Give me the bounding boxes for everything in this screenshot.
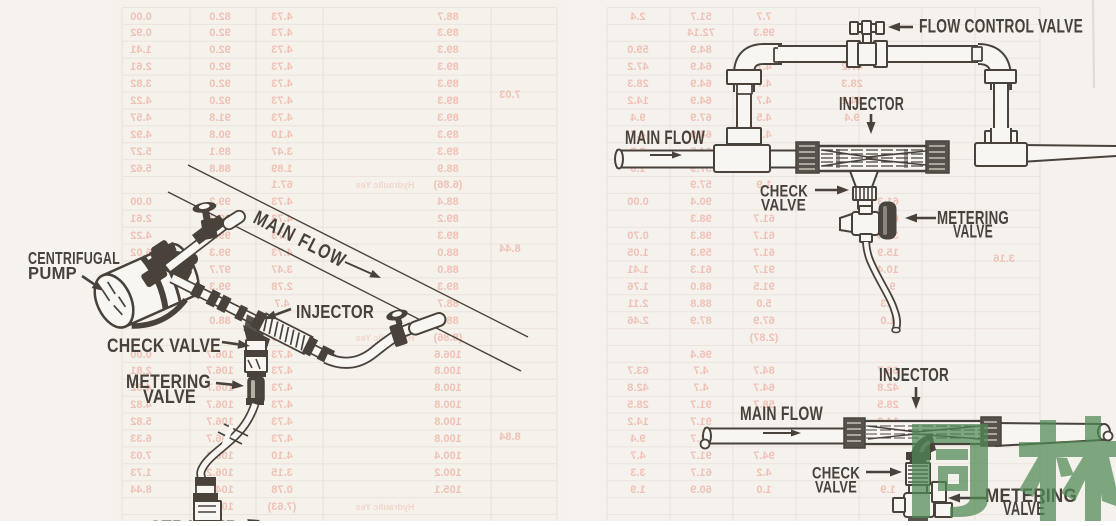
- svg-text:1.76: 1.76: [627, 281, 648, 293]
- svg-text:89.3: 89.3: [437, 230, 458, 242]
- svg-text:89.3: 89.3: [437, 281, 458, 293]
- svg-text:2.11: 2.11: [628, 298, 649, 310]
- svg-text:MAIN FLOW: MAIN FLOW: [740, 403, 823, 425]
- svg-text:92.0: 92.0: [209, 61, 230, 73]
- svg-text:2.61: 2.61: [130, 213, 151, 225]
- svg-text:60.9: 60.9: [690, 484, 711, 496]
- svg-text:(7.63): (7.63): [267, 501, 296, 513]
- svg-text:89.1: 89.1: [209, 146, 230, 158]
- svg-text:VALVE: VALVE: [815, 479, 857, 497]
- svg-text:4.73: 4.73: [271, 433, 292, 445]
- svg-text:1.05: 1.05: [627, 247, 648, 259]
- svg-text:72.14: 72.14: [686, 27, 714, 39]
- svg-text:92.0: 92.0: [209, 95, 230, 107]
- svg-text:3.16: 3.16: [993, 253, 1014, 265]
- svg-text:61.3: 61.3: [690, 264, 711, 276]
- svg-text:1.89: 1.89: [271, 163, 292, 175]
- svg-text:3.47: 3.47: [271, 264, 292, 276]
- svg-text:1.73: 1.73: [130, 467, 151, 479]
- svg-text:4.7: 4.7: [693, 365, 708, 377]
- svg-text:100.4: 100.4: [433, 450, 461, 462]
- svg-text:4.7: 4.7: [693, 382, 708, 394]
- svg-text:4.7: 4.7: [274, 298, 289, 310]
- svg-text:0.00: 0.00: [130, 196, 151, 208]
- svg-text:89.3: 89.3: [437, 129, 458, 141]
- svg-text:91.7: 91.7: [690, 399, 711, 411]
- svg-text:INJECTOR: INJECTOR: [839, 94, 904, 114]
- svg-text:MAIN FLOW: MAIN FLOW: [625, 127, 705, 149]
- svg-text:61.7: 61.7: [753, 230, 774, 242]
- svg-text:98.3: 98.3: [690, 213, 711, 225]
- svg-text:89.3: 89.3: [437, 61, 458, 73]
- svg-text:4.73: 4.73: [271, 61, 292, 73]
- svg-text:9.4: 9.4: [629, 433, 645, 445]
- svg-text:42.8: 42.8: [627, 382, 648, 394]
- svg-text:92.0: 92.0: [209, 78, 230, 90]
- svg-text:(6.86): (6.86): [433, 179, 462, 191]
- svg-text:8.84: 8.84: [498, 431, 520, 443]
- svg-text:88.0: 88.0: [437, 247, 458, 259]
- svg-text:3.47: 3.47: [271, 146, 292, 158]
- svg-text:CHECK VALVE: CHECK VALVE: [107, 336, 221, 357]
- svg-text:Hydraulic Yes: Hydraulic Yes: [356, 502, 415, 512]
- svg-text:8.44: 8.44: [129, 484, 151, 496]
- svg-text:4.73: 4.73: [271, 44, 292, 56]
- svg-text:0.00: 0.00: [130, 11, 151, 23]
- svg-text:4.10: 4.10: [271, 129, 292, 141]
- svg-text:VALVE: VALVE: [1003, 499, 1045, 520]
- svg-text:9.4: 9.4: [629, 112, 645, 124]
- svg-text:64.9: 64.9: [690, 78, 711, 90]
- svg-text:4.73: 4.73: [271, 349, 292, 361]
- svg-text:88.0: 88.0: [209, 315, 230, 327]
- svg-text:61.7: 61.7: [753, 213, 774, 225]
- svg-text:94.7: 94.7: [753, 450, 774, 462]
- svg-text:61.7: 61.7: [690, 467, 711, 479]
- svg-text:4.92: 4.92: [130, 129, 151, 141]
- svg-text:4.73: 4.73: [271, 416, 292, 428]
- svg-text:64.9: 64.9: [690, 95, 711, 107]
- svg-text:0.00: 0.00: [627, 196, 648, 208]
- svg-text:28.5: 28.5: [627, 399, 648, 411]
- svg-text:INJECTOR: INJECTOR: [879, 365, 949, 385]
- svg-text:100.8: 100.8: [434, 382, 462, 394]
- svg-text:4.73: 4.73: [271, 78, 292, 90]
- svg-text:4.73: 4.73: [271, 27, 292, 39]
- svg-text:5.62: 5.62: [130, 163, 151, 175]
- svg-text:4.73: 4.73: [271, 365, 292, 377]
- svg-text:1.0: 1.0: [756, 484, 771, 496]
- svg-text:84.7: 84.7: [753, 365, 774, 377]
- svg-text:88.9: 88.9: [437, 163, 458, 175]
- svg-text:4.7: 4.7: [756, 95, 771, 107]
- svg-text:5.27: 5.27: [130, 146, 151, 158]
- svg-text:90.8: 90.8: [209, 129, 230, 141]
- svg-text:4.5: 4.5: [756, 112, 771, 124]
- svg-text:59.3: 59.3: [690, 247, 711, 259]
- svg-text:FLOW CONTROL VALVE: FLOW CONTROL VALVE: [919, 17, 1083, 38]
- svg-text:PUMP: PUMP: [28, 263, 77, 283]
- svg-text:100.8: 100.8: [434, 416, 462, 428]
- svg-text:0.70: 0.70: [627, 230, 648, 242]
- svg-text:7.7: 7.7: [756, 11, 771, 23]
- svg-text:47.2: 47.2: [627, 61, 648, 73]
- svg-text:1.9: 1.9: [630, 484, 645, 496]
- svg-text:4.73: 4.73: [271, 11, 292, 23]
- svg-text:7.03: 7.03: [130, 450, 151, 462]
- svg-text:4.22: 4.22: [130, 230, 151, 242]
- svg-text:67.9: 67.9: [690, 112, 711, 124]
- svg-text:6.33: 6.33: [130, 433, 151, 445]
- svg-text:105.1: 105.1: [434, 484, 462, 496]
- svg-text:VALVE: VALVE: [953, 222, 993, 242]
- svg-text:2.78: 2.78: [271, 281, 292, 293]
- svg-text:96.4: 96.4: [689, 349, 711, 361]
- svg-text:106.6: 106.6: [434, 349, 462, 361]
- svg-text:59.0: 59.0: [627, 44, 648, 56]
- svg-text:89.3: 89.3: [437, 95, 458, 107]
- svg-text:100.8: 100.8: [434, 433, 462, 445]
- svg-text:3.3: 3.3: [630, 467, 645, 479]
- svg-text:91.7: 91.7: [690, 416, 711, 428]
- svg-text:4.57: 4.57: [130, 112, 151, 124]
- svg-text:63.7: 63.7: [627, 365, 648, 377]
- svg-text:89.3: 89.3: [437, 44, 458, 56]
- svg-text:2.61: 2.61: [130, 61, 151, 73]
- svg-text:VALVE: VALVE: [143, 387, 196, 408]
- svg-text:84.9: 84.9: [690, 44, 711, 56]
- svg-text:92.0: 92.0: [209, 27, 230, 39]
- svg-text:4.73: 4.73: [271, 399, 292, 411]
- svg-text:90.4: 90.4: [689, 196, 711, 208]
- svg-text:67.9: 67.9: [753, 315, 774, 327]
- svg-text:89.3: 89.3: [437, 112, 458, 124]
- svg-text:57.9: 57.9: [690, 179, 711, 191]
- svg-text:5.0: 5.0: [756, 298, 771, 310]
- svg-text:100.8: 100.8: [434, 365, 462, 377]
- svg-text:1.41: 1.41: [130, 44, 151, 56]
- svg-text:91.8: 91.8: [209, 112, 230, 124]
- svg-text:4.73: 4.73: [271, 95, 292, 107]
- svg-text:99.3: 99.3: [209, 247, 230, 259]
- svg-text:28.3: 28.3: [627, 78, 648, 90]
- svg-text:68.0: 68.0: [690, 281, 711, 293]
- svg-text:3.15: 3.15: [271, 467, 292, 479]
- svg-text:87.9: 87.9: [690, 315, 711, 327]
- svg-text:88.7: 88.7: [437, 11, 458, 23]
- svg-text:14.2: 14.2: [627, 95, 648, 107]
- svg-text:51.7: 51.7: [690, 11, 711, 23]
- svg-text:1.9: 1.9: [880, 484, 895, 496]
- svg-text:91.7: 91.7: [753, 264, 774, 276]
- svg-text:88.0: 88.0: [437, 264, 458, 276]
- svg-text:88.8: 88.8: [690, 298, 711, 310]
- svg-text:64.9: 64.9: [690, 61, 711, 73]
- svg-text:98.3: 98.3: [690, 230, 711, 242]
- svg-text:88.8: 88.8: [209, 163, 230, 175]
- svg-text:4.10: 4.10: [271, 450, 292, 462]
- svg-text:1.41: 1.41: [627, 264, 648, 276]
- svg-text:67.1: 67.1: [271, 179, 292, 191]
- svg-text:89.3: 89.3: [437, 78, 458, 90]
- svg-text:88.4: 88.4: [436, 196, 458, 208]
- svg-text:106.7: 106.7: [206, 399, 234, 411]
- svg-text:4.73: 4.73: [271, 382, 292, 394]
- svg-text:4.22: 4.22: [130, 95, 151, 107]
- svg-text:Hydraulic Yes: Hydraulic Yes: [356, 180, 415, 190]
- svg-text:(2.87): (2.87): [749, 332, 778, 344]
- svg-text:92.0: 92.0: [209, 44, 230, 56]
- svg-text:2.4: 2.4: [629, 11, 645, 23]
- svg-text:4.73: 4.73: [271, 112, 292, 124]
- svg-text:64.7: 64.7: [753, 382, 774, 394]
- svg-text:8.44: 8.44: [498, 243, 520, 255]
- svg-text:VALVE: VALVE: [761, 197, 806, 215]
- svg-text:28.5: 28.5: [877, 399, 898, 411]
- svg-text:7.03: 7.03: [499, 89, 520, 101]
- svg-text:3.82: 3.82: [130, 78, 151, 90]
- svg-text:91.5: 91.5: [753, 281, 774, 293]
- svg-text:0.92: 0.92: [130, 27, 151, 39]
- svg-text:89.3: 89.3: [437, 146, 458, 158]
- svg-text:82.0: 82.0: [209, 11, 230, 23]
- svg-text:0.78: 0.78: [271, 484, 292, 496]
- svg-text:INJECTOR: INJECTOR: [296, 301, 374, 322]
- svg-text:91.7: 91.7: [690, 450, 711, 462]
- svg-text:4.2: 4.2: [756, 467, 771, 479]
- svg-text:100.2: 100.2: [434, 467, 462, 479]
- svg-text:99.3: 99.3: [753, 27, 774, 39]
- svg-text:97.7: 97.7: [209, 264, 230, 276]
- svg-text:14.2: 14.2: [627, 416, 648, 428]
- svg-text:28.3: 28.3: [841, 78, 862, 90]
- svg-text:4.73: 4.73: [271, 196, 292, 208]
- svg-text:5.82: 5.82: [130, 416, 151, 428]
- svg-text:4.7: 4.7: [630, 450, 645, 462]
- svg-text:100.8: 100.8: [434, 399, 462, 411]
- svg-text:15.9: 15.9: [877, 247, 898, 259]
- svg-text:89.2: 89.2: [437, 213, 458, 225]
- svg-text:2.46: 2.46: [627, 315, 648, 327]
- svg-text:61.7: 61.7: [753, 247, 774, 259]
- svg-text:89.3: 89.3: [437, 27, 458, 39]
